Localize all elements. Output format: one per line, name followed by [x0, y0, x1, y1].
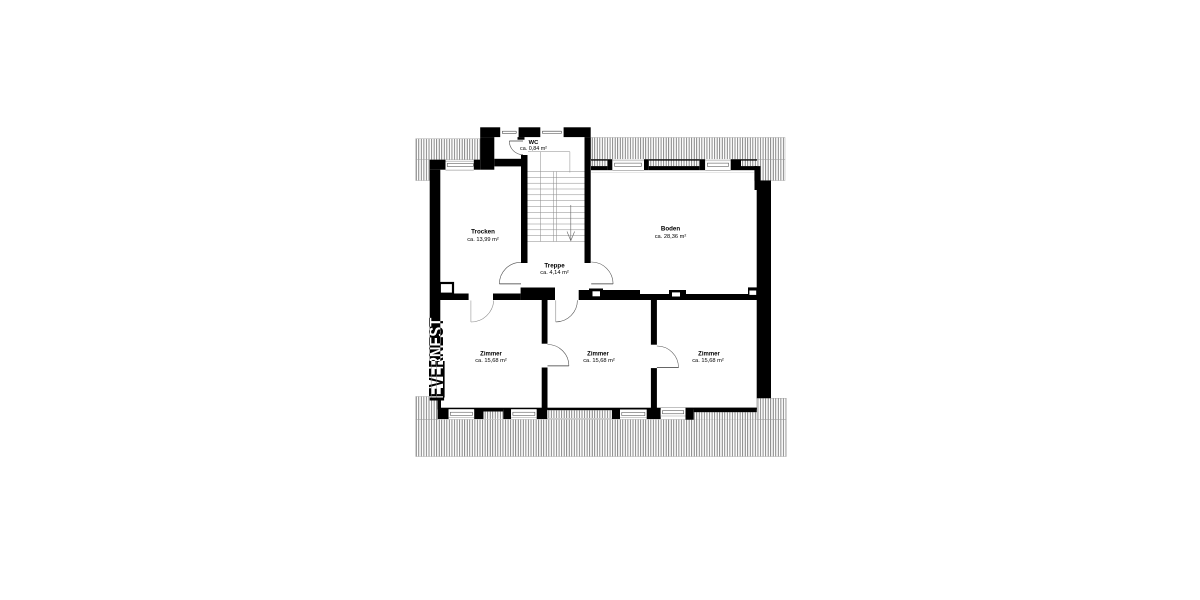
svg-text:ca. 15,68 m²: ca. 15,68 m²	[692, 358, 724, 364]
svg-text:ca. 0,84 m²: ca. 0,84 m²	[520, 146, 547, 152]
svg-text:Treppe: Treppe	[544, 263, 565, 270]
svg-text:ca. 28,36 m²: ca. 28,36 m²	[655, 234, 687, 240]
svg-text:Trocken: Trocken	[471, 229, 495, 236]
svg-text:ca. 15,68 m²: ca. 15,68 m²	[583, 358, 615, 364]
svg-text:EVERNEST: EVERNEST	[426, 318, 448, 398]
svg-text:Boden: Boden	[661, 226, 680, 233]
svg-text:Zimmer: Zimmer	[698, 351, 720, 357]
svg-text:Zimmer: Zimmer	[480, 351, 502, 357]
svg-text:ca. 13,99 m²: ca. 13,99 m²	[467, 237, 499, 243]
svg-text:Zimmer: Zimmer	[587, 351, 609, 357]
svg-text:ca. 4,14 m²: ca. 4,14 m²	[540, 270, 569, 276]
svg-text:WC: WC	[529, 140, 539, 146]
svg-text:ca. 15,68 m²: ca. 15,68 m²	[475, 358, 507, 364]
